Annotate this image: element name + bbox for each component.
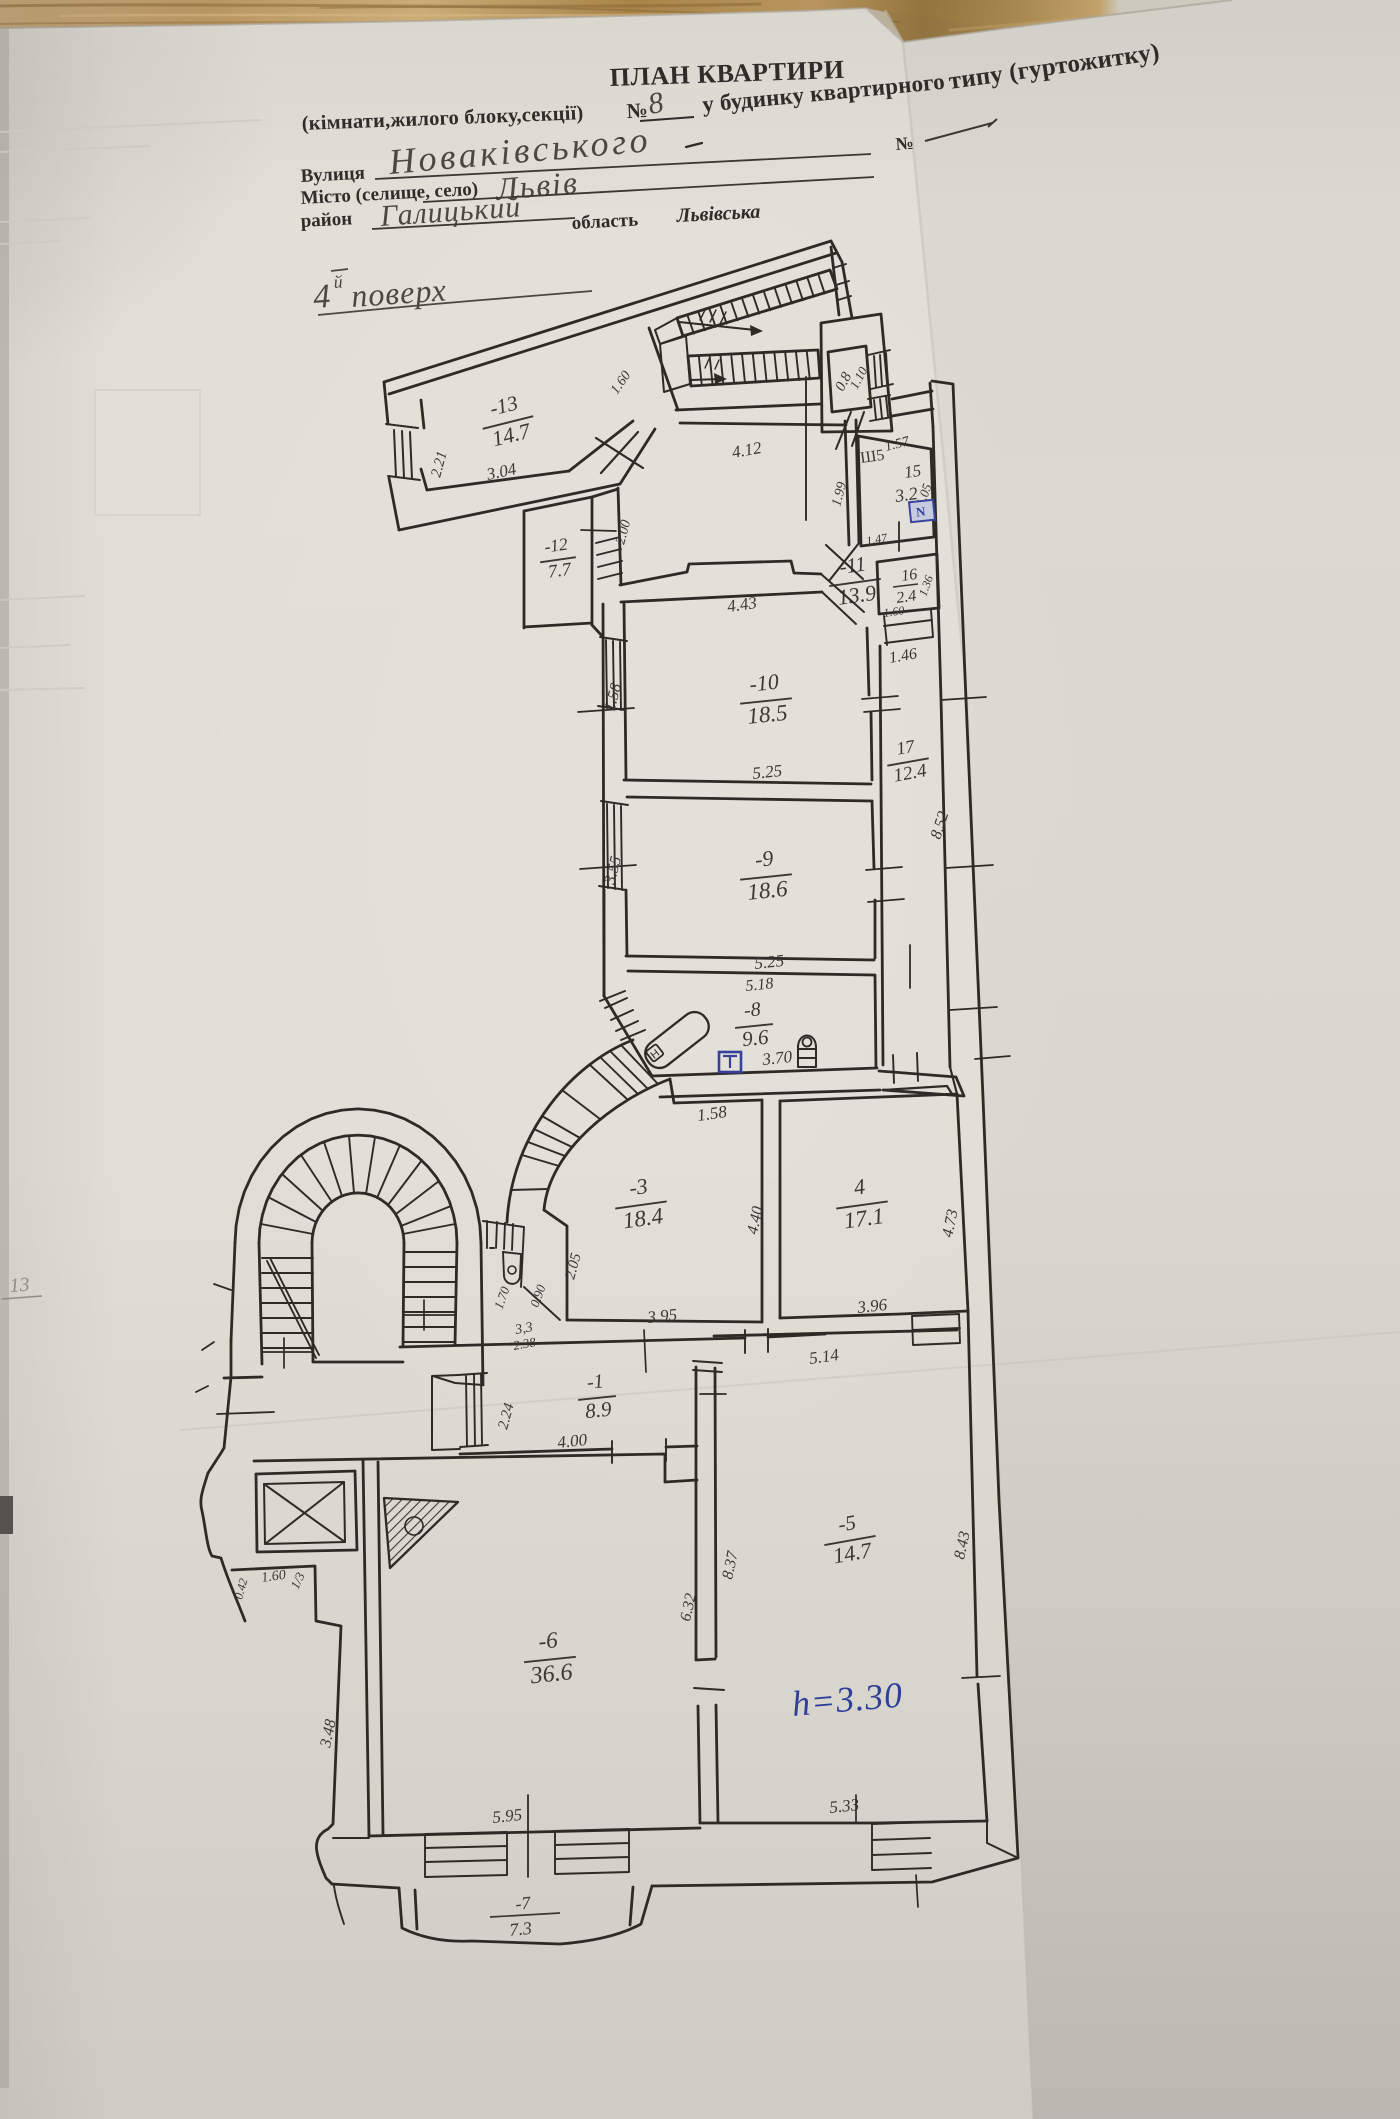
svg-text:36.6: 36.6	[528, 1659, 573, 1689]
svg-text:-6: -6	[537, 1627, 559, 1654]
svg-text:15: 15	[903, 461, 922, 482]
svg-text:5.25: 5.25	[753, 951, 785, 973]
svg-text:18.6: 18.6	[746, 876, 789, 905]
svg-text:-3: -3	[628, 1173, 650, 1200]
svg-text:область: область	[571, 210, 639, 234]
svg-text:Ш5: Ш5	[859, 447, 885, 467]
svg-text:-9: -9	[754, 845, 775, 872]
svg-text:16: 16	[900, 566, 918, 585]
svg-text:7.3: 7.3	[508, 1918, 532, 1940]
svg-text:5.95: 5.95	[491, 1805, 523, 1827]
svg-text:9.6: 9.6	[741, 1025, 770, 1052]
svg-text:5.25: 5.25	[751, 761, 783, 783]
svg-text:7.7: 7.7	[547, 560, 573, 583]
svg-text:-10: -10	[748, 669, 780, 697]
svg-text:-8: -8	[743, 998, 762, 1022]
svg-text:-12: -12	[543, 534, 569, 557]
svg-text:Вулиця: Вулиця	[300, 163, 365, 187]
svg-text:й: й	[333, 271, 343, 292]
svg-text:-1: -1	[586, 1370, 605, 1394]
svg-text:3.95: 3.95	[645, 1305, 678, 1327]
svg-text:1.60: 1.60	[882, 603, 905, 620]
svg-text:4: 4	[312, 278, 332, 316]
svg-text:4.00: 4.00	[556, 1430, 588, 1452]
svg-text:Львівська: Львівська	[675, 201, 761, 227]
svg-text:18.5: 18.5	[746, 700, 789, 729]
svg-text:район: район	[300, 208, 353, 232]
svg-text:8.9: 8.9	[584, 1397, 613, 1424]
svg-text:3.96: 3.96	[855, 1295, 888, 1317]
svg-text:№: №	[895, 133, 914, 154]
svg-text:5.18: 5.18	[745, 975, 775, 995]
svg-text:3.70: 3.70	[760, 1047, 793, 1069]
svg-text:13: 13	[9, 1274, 30, 1297]
